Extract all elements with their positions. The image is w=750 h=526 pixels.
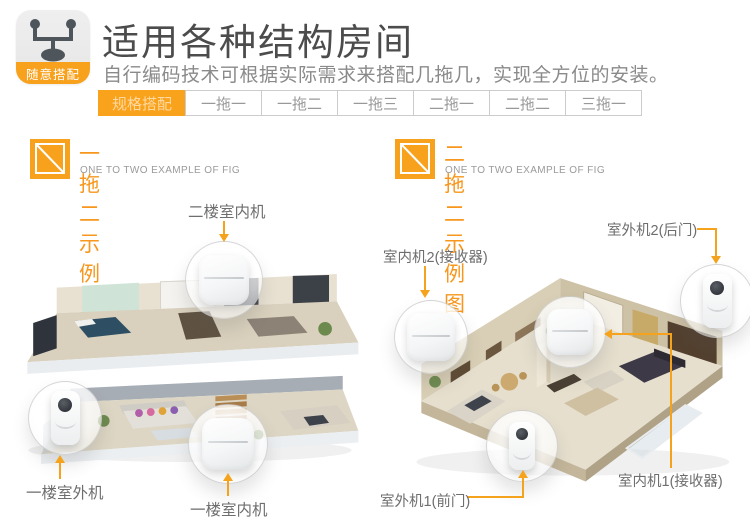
arrow-line bbox=[227, 480, 229, 496]
page-title: 适用各种结构房间 bbox=[102, 12, 414, 66]
right-section-subtitle: ONE TO TWO EXAMPLE OF FIG bbox=[445, 165, 605, 176]
outdoor-unit-device bbox=[509, 422, 535, 470]
indoor-unit-device bbox=[407, 313, 455, 361]
tab-1to3[interactable]: 一拖三 bbox=[337, 90, 414, 116]
tab-2to1[interactable]: 二拖一 bbox=[413, 90, 490, 116]
arrow-line bbox=[59, 462, 61, 479]
label-outdoor-unit-1-front-door: 室外机1(前门) bbox=[380, 490, 470, 511]
spec-tab-bar: 规格搭配 一拖一 一拖二 一拖三 二拖一 二拖二 三拖一 bbox=[98, 90, 642, 116]
label-indoor-unit-1-receiver: 室内机1(接收器) bbox=[618, 470, 723, 491]
arrow-line bbox=[697, 228, 717, 230]
label-outdoor-unit-2-back-door: 室外机2(后门) bbox=[607, 219, 697, 240]
tab-3to1[interactable]: 三拖一 bbox=[565, 90, 642, 116]
outdoor-unit-device bbox=[703, 274, 732, 328]
arrow-down-icon bbox=[219, 234, 229, 242]
tab-spec-match[interactable]: 规格搭配 bbox=[98, 90, 186, 116]
device-callout bbox=[28, 381, 102, 455]
indoor-unit-device bbox=[547, 309, 593, 355]
arrow-line bbox=[611, 333, 672, 335]
tab-1to1[interactable]: 一拖一 bbox=[185, 90, 262, 116]
arrow-line bbox=[715, 228, 717, 258]
device-callout bbox=[680, 264, 750, 338]
label-first-floor-outdoor-unit: 一楼室外机 bbox=[26, 481, 104, 503]
page-subtitle: 自行编码技术可根据实际需求来搭配几拖几，实现全方位的安装。 bbox=[103, 60, 669, 87]
tab-1to2[interactable]: 一拖二 bbox=[261, 90, 338, 116]
outdoor-unit-device bbox=[51, 391, 80, 445]
arrow-down-icon bbox=[420, 290, 430, 298]
device-callout bbox=[534, 296, 606, 368]
product-infographic-page: 随意搭配 适用各种结构房间 自行编码技术可根据实际需求来搭配几拖几，实现全方位的… bbox=[0, 0, 750, 526]
diagonal-square-icon bbox=[395, 139, 435, 179]
indoor-unit-device bbox=[202, 418, 253, 469]
arrow-up-icon bbox=[518, 470, 528, 478]
tab-2to2[interactable]: 二拖二 bbox=[489, 90, 566, 116]
device-callout bbox=[188, 404, 268, 484]
device-callout bbox=[185, 241, 263, 319]
indoor-unit-device bbox=[199, 255, 249, 305]
arrow-down-icon bbox=[711, 256, 721, 264]
arrow-line bbox=[467, 496, 524, 498]
device-callout bbox=[394, 300, 468, 374]
label-first-floor-indoor-unit: 一楼室内机 bbox=[190, 498, 268, 520]
arrow-line bbox=[670, 333, 672, 468]
label-second-floor-indoor-unit: 二楼室内机 bbox=[188, 200, 266, 222]
splitter-glyph bbox=[16, 11, 90, 63]
label-indoor-unit-2-receiver: 室内机2(接收器) bbox=[383, 246, 488, 267]
arrow-line bbox=[522, 478, 524, 498]
badge-label: 随意搭配 bbox=[16, 62, 90, 84]
splitter-icon: 随意搭配 bbox=[16, 10, 90, 84]
diagonal-square-icon bbox=[30, 139, 70, 179]
left-section-subtitle: ONE TO TWO EXAMPLE OF FIG bbox=[80, 165, 240, 176]
arrow-line bbox=[424, 266, 426, 292]
